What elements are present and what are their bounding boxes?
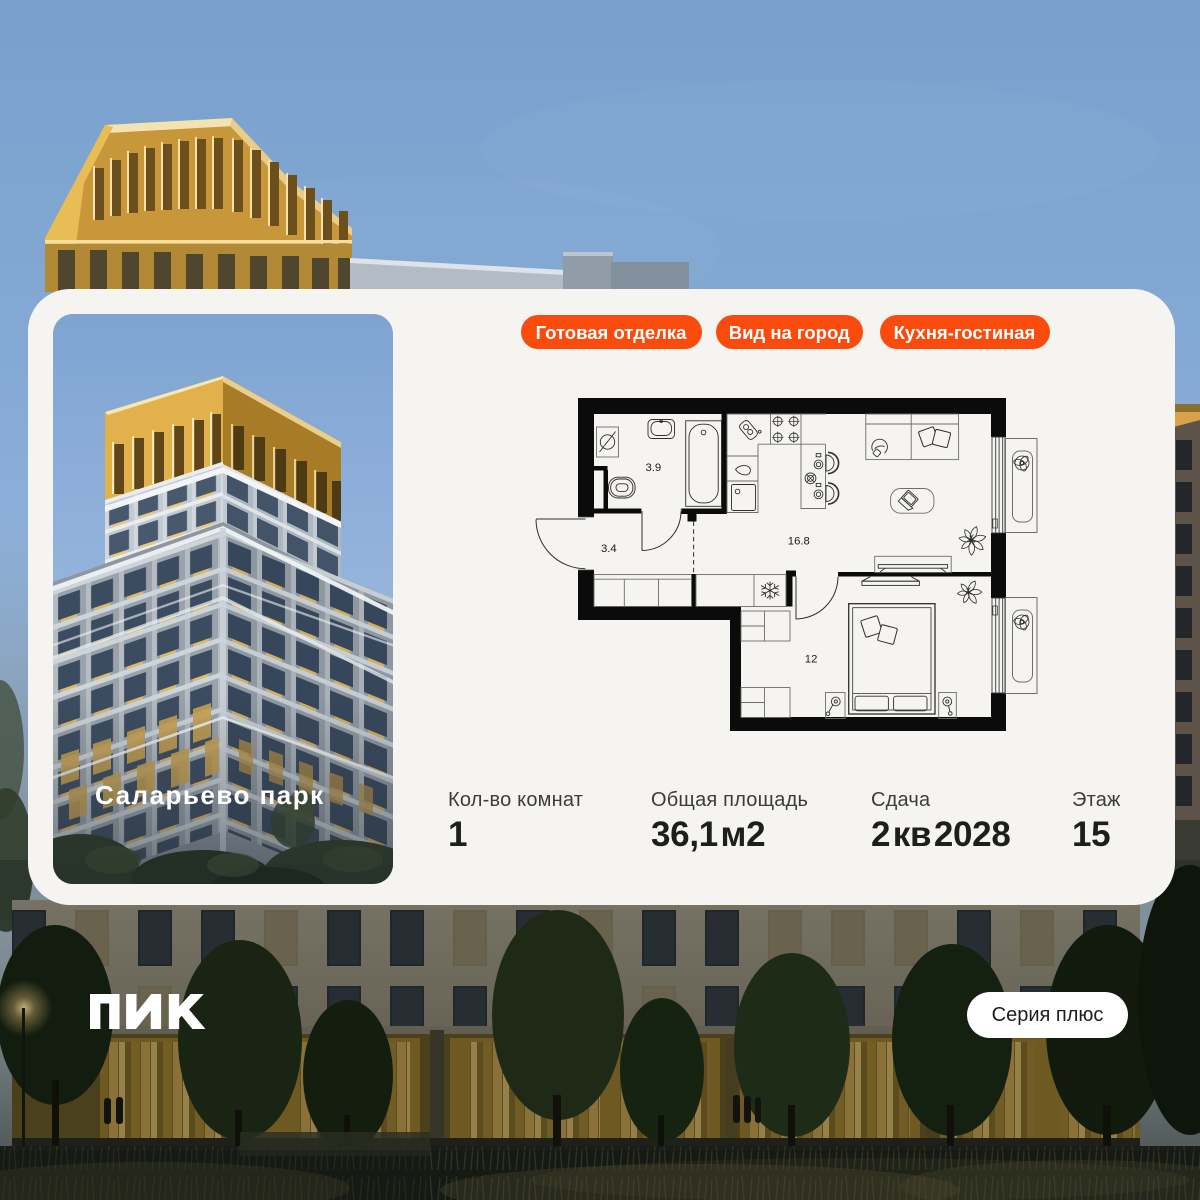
svg-text:16.8: 16.8 bbox=[788, 536, 810, 548]
svg-text:3.4: 3.4 bbox=[601, 543, 617, 555]
svg-text:12: 12 bbox=[805, 654, 818, 666]
svg-text:3.9: 3.9 bbox=[646, 462, 662, 474]
